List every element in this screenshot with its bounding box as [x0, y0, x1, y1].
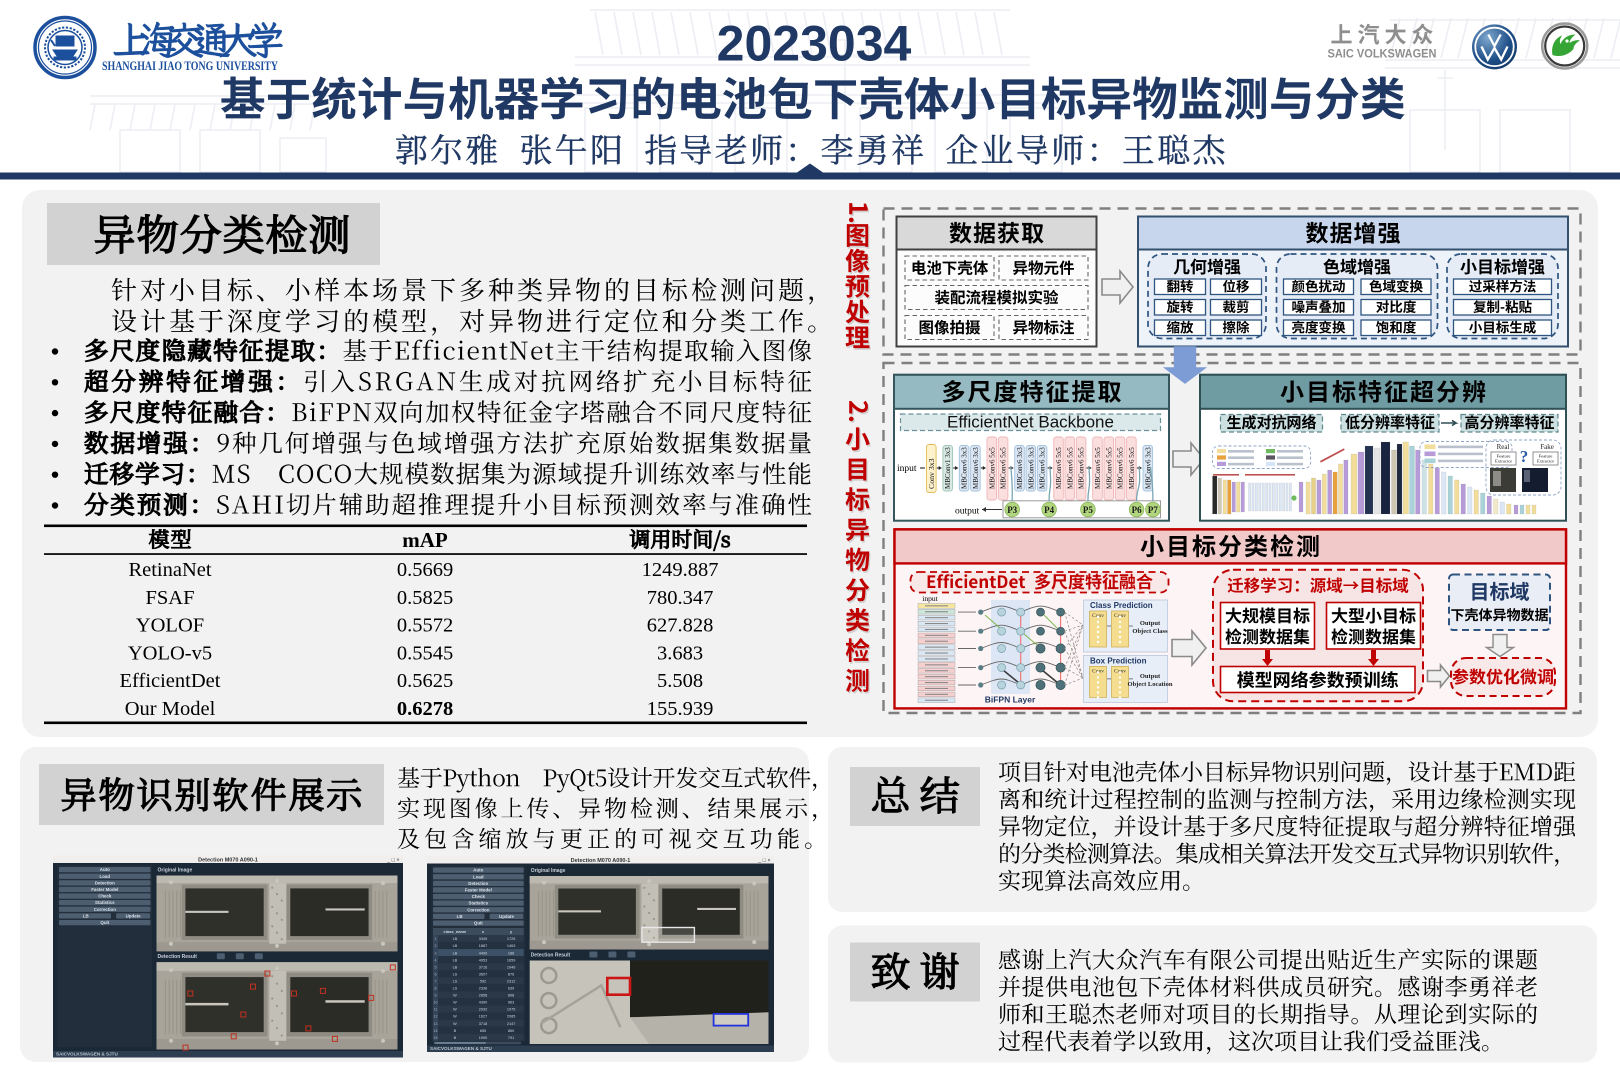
svg-text:627.828: 627.828 — [647, 615, 714, 637]
svg-text:639: 639 — [508, 987, 514, 991]
svg-text:Original Image: Original Image — [531, 868, 566, 874]
svg-text:2336: 2336 — [479, 987, 487, 991]
svg-text:0.5625: 0.5625 — [397, 670, 453, 692]
svg-text:LB: LB — [453, 951, 458, 955]
svg-text:2: 2 — [435, 944, 437, 948]
svg-text:Detection Result: Detection Result — [531, 953, 571, 959]
svg-text:LS: LS — [453, 972, 458, 976]
svg-text:4: 4 — [435, 958, 437, 962]
svg-text:P7: P7 — [1148, 505, 1158, 515]
svg-text:1659: 1659 — [507, 958, 515, 962]
svg-text:MBConv6 5x5: MBConv6 5x5 — [1094, 447, 1102, 489]
svg-text:898: 898 — [508, 994, 514, 998]
svg-text:_ □ ×: _ □ × — [386, 857, 400, 863]
svg-text:Statistics: Statistics — [95, 900, 115, 905]
svg-text:Detection: Detection — [468, 881, 488, 886]
svg-text:FSAF: FSAF — [145, 587, 194, 609]
svg-text:592: 592 — [480, 980, 486, 984]
svg-text:LB: LB — [83, 913, 89, 918]
svg-text:2858: 2858 — [479, 994, 487, 998]
svg-text:LS: LS — [453, 980, 458, 984]
svg-text:MBConv6 3x3: MBConv6 3x3 — [972, 447, 980, 489]
svg-text:MBConv6 5x5: MBConv6 5x5 — [1117, 447, 1125, 489]
svg-text:3: 3 — [435, 951, 437, 955]
svg-text:Detection: Detection — [95, 880, 115, 885]
svg-text:2085: 2085 — [507, 1015, 515, 1019]
svg-text:input: input — [922, 594, 938, 603]
svg-text:P5: P5 — [1083, 505, 1093, 515]
svg-text:Output: Output — [1140, 620, 1161, 627]
svg-text:LB: LB — [453, 944, 458, 948]
svg-text:W: W — [453, 994, 457, 998]
svg-text:4390: 4390 — [479, 1001, 487, 1005]
svg-text:LB: LB — [453, 965, 458, 969]
svg-text:Detection Result: Detection Result — [158, 954, 198, 960]
svg-text:13: 13 — [434, 1022, 438, 1026]
svg-text:1463: 1463 — [507, 944, 515, 948]
svg-text:1990: 1990 — [479, 1036, 487, 1040]
svg-text:155.939: 155.939 — [647, 698, 714, 720]
svg-text:MBConv6 5x5: MBConv6 5x5 — [1000, 447, 1008, 489]
svg-text:6: 6 — [435, 972, 437, 976]
svg-text:Statistics: Statistics — [469, 901, 489, 906]
svg-text:input: input — [897, 464, 917, 474]
svg-text:P3: P3 — [1007, 505, 1017, 515]
svg-text:Detection M070 A090-1: Detection M070 A090-1 — [571, 858, 631, 864]
svg-text:1887: 1887 — [479, 944, 487, 948]
svg-text:Auto: Auto — [473, 868, 483, 873]
svg-text:MBConv6 5x5: MBConv6 5x5 — [1055, 447, 1063, 489]
svg-text:1975: 1975 — [507, 1008, 515, 1012]
svg-text:791: 791 — [508, 1036, 514, 1040]
svg-text:Correction: Correction — [94, 907, 117, 912]
svg-text:Check: Check — [472, 894, 486, 899]
svg-text:Original Image: Original Image — [158, 868, 193, 874]
svg-text:Auto: Auto — [100, 867, 110, 872]
svg-text:P4: P4 — [1044, 505, 1054, 515]
svg-text:2932: 2932 — [479, 1008, 487, 1012]
svg-text:YOLO-v5: YOLO-v5 — [128, 642, 212, 664]
svg-text:Quit: Quit — [100, 920, 109, 925]
svg-text:W: W — [453, 1001, 457, 1005]
svg-text:W: W — [453, 1015, 457, 1019]
svg-text:4953: 4953 — [479, 958, 487, 962]
svg-text:3.683: 3.683 — [657, 642, 703, 664]
svg-text:Conv 3x3: Conv 3x3 — [927, 458, 936, 489]
svg-text:4490: 4490 — [479, 951, 487, 955]
svg-text:Box Prediction: Box Prediction — [1090, 656, 1147, 665]
svg-text:3716: 3716 — [479, 965, 487, 969]
svg-text:SAIC VOLKSWAGEN: SAIC VOLKSWAGEN — [1328, 49, 1437, 61]
svg-text:W: W — [453, 1022, 457, 1026]
svg-text:P6: P6 — [1132, 505, 1142, 515]
svg-text:MBConv6 3x3: MBConv6 3x3 — [1027, 447, 1035, 489]
svg-text:MBConv6 5x5: MBConv6 5x5 — [1128, 447, 1136, 489]
svg-text:MBConv1 3x3: MBConv1 3x3 — [944, 447, 952, 489]
svg-text:0.5545: 0.5545 — [397, 642, 453, 664]
svg-text:B: B — [454, 1029, 457, 1033]
svg-text:Object Class: Object Class — [1132, 628, 1168, 635]
svg-text:12: 12 — [434, 1015, 438, 1019]
svg-text:Load: Load — [473, 874, 484, 879]
svg-text:780.347: 780.347 — [647, 587, 714, 609]
svg-text:?: ? — [1520, 447, 1529, 466]
svg-text:Output: Output — [1140, 673, 1161, 680]
svg-text:Update: Update — [126, 913, 141, 918]
svg-text:LS: LS — [453, 987, 458, 991]
svg-text:LB: LB — [453, 958, 458, 962]
svg-text:8: 8 — [435, 987, 437, 991]
svg-text:7: 7 — [435, 980, 437, 984]
svg-text:Load: Load — [100, 874, 111, 879]
svg-text:LB: LB — [457, 914, 463, 919]
svg-text:mAP: mAP — [402, 528, 448, 552]
svg-text:W: W — [453, 1008, 457, 1012]
svg-text:BiFPN Layer: BiFPN Layer — [985, 695, 1036, 705]
svg-text:Real: Real — [1497, 443, 1510, 451]
svg-text:MBConv6 5x5: MBConv6 5x5 — [988, 447, 996, 489]
svg-text:MBConv6 5x5: MBConv6 5x5 — [1078, 447, 1086, 489]
svg-text:Extractor: Extractor — [1495, 459, 1513, 464]
svg-text:2312: 2312 — [507, 980, 515, 984]
svg-text:MBConv6 3x3: MBConv6 3x3 — [1016, 447, 1024, 489]
svg-text:YOLOF: YOLOF — [136, 615, 204, 637]
svg-text:Fake: Fake — [1540, 443, 1554, 451]
svg-text:1725: 1725 — [507, 937, 515, 941]
svg-text:3507: 3507 — [479, 972, 487, 976]
svg-text:Faster Model: Faster Model — [465, 888, 492, 893]
svg-text:Our Model: Our Model — [125, 698, 216, 720]
svg-text:1627: 1627 — [479, 1015, 487, 1019]
svg-text:Detection M070 A090-1: Detection M070 A090-1 — [198, 857, 258, 863]
svg-text:2147: 2147 — [507, 1022, 515, 1026]
svg-text:0.6278: 0.6278 — [397, 698, 453, 720]
svg-text:RetinaNet: RetinaNet — [128, 559, 211, 581]
svg-text:Check: Check — [98, 894, 112, 899]
svg-text:963: 963 — [508, 1001, 514, 1005]
svg-text:LB: LB — [453, 937, 458, 941]
svg-text:10: 10 — [434, 1001, 438, 1005]
svg-text:SAICVOLKSWAGEN & SJTU: SAICVOLKSWAGEN & SJTU — [56, 1052, 118, 1057]
svg-text:860: 860 — [508, 1029, 514, 1033]
svg-text:SHANGHAI JIAO TONG UNIVERSITY: SHANGHAI JIAO TONG UNIVERSITY — [102, 59, 278, 73]
svg-text:876: 876 — [508, 972, 514, 976]
svg-text:2023034: 2023034 — [717, 16, 912, 72]
svg-text:14: 14 — [434, 1029, 438, 1033]
svg-text:Correction: Correction — [467, 907, 490, 912]
svg-text:3349: 3349 — [479, 937, 487, 941]
svg-text:1249.887: 1249.887 — [642, 559, 719, 581]
svg-text:MBConv6 5x5: MBConv6 5x5 — [1066, 447, 1074, 489]
svg-text:9: 9 — [435, 994, 437, 998]
svg-text:Object Location: Object Location — [1128, 681, 1173, 688]
svg-text:655: 655 — [480, 1029, 486, 1033]
svg-text:class_name: class_name — [444, 929, 467, 934]
svg-text:output: output — [955, 507, 980, 517]
svg-text:3718: 3718 — [479, 1022, 487, 1026]
svg-text:15: 15 — [434, 1036, 438, 1040]
svg-text:Quit: Quit — [474, 921, 483, 926]
svg-text:EfficientNet Backbone: EfficientNet Backbone — [947, 413, 1114, 432]
svg-text:Class Prediction: Class Prediction — [1090, 601, 1153, 610]
svg-text:1: 1 — [435, 937, 437, 941]
svg-text:Faster Model: Faster Model — [91, 887, 118, 892]
svg-text:Update: Update — [499, 914, 514, 919]
svg-text:MBConv6 3x3: MBConv6 3x3 — [1039, 447, 1047, 489]
svg-text:SAICVOLKSWAGEN & SJTU: SAICVOLKSWAGEN & SJTU — [430, 1046, 492, 1051]
svg-text:0.5669: 0.5669 — [397, 559, 453, 581]
svg-text:EfficientDet: EfficientDet — [120, 670, 221, 692]
svg-text:186: 186 — [508, 951, 514, 955]
svg-text:MBConv6 3x3: MBConv6 3x3 — [961, 447, 969, 489]
svg-text:11: 11 — [434, 1008, 438, 1012]
svg-text:0.5825: 0.5825 — [397, 587, 453, 609]
svg-text:MBConv6 5x5: MBConv6 5x5 — [1105, 447, 1113, 489]
svg-text:_ □ ×: _ □ × — [757, 858, 771, 864]
svg-text:1946: 1946 — [507, 965, 515, 969]
svg-text:5.508: 5.508 — [657, 670, 703, 692]
svg-text:B: B — [454, 1036, 457, 1040]
svg-text:0.5572: 0.5572 — [397, 615, 453, 637]
svg-text:Extractor: Extractor — [1537, 459, 1555, 464]
svg-text:5: 5 — [435, 965, 437, 969]
